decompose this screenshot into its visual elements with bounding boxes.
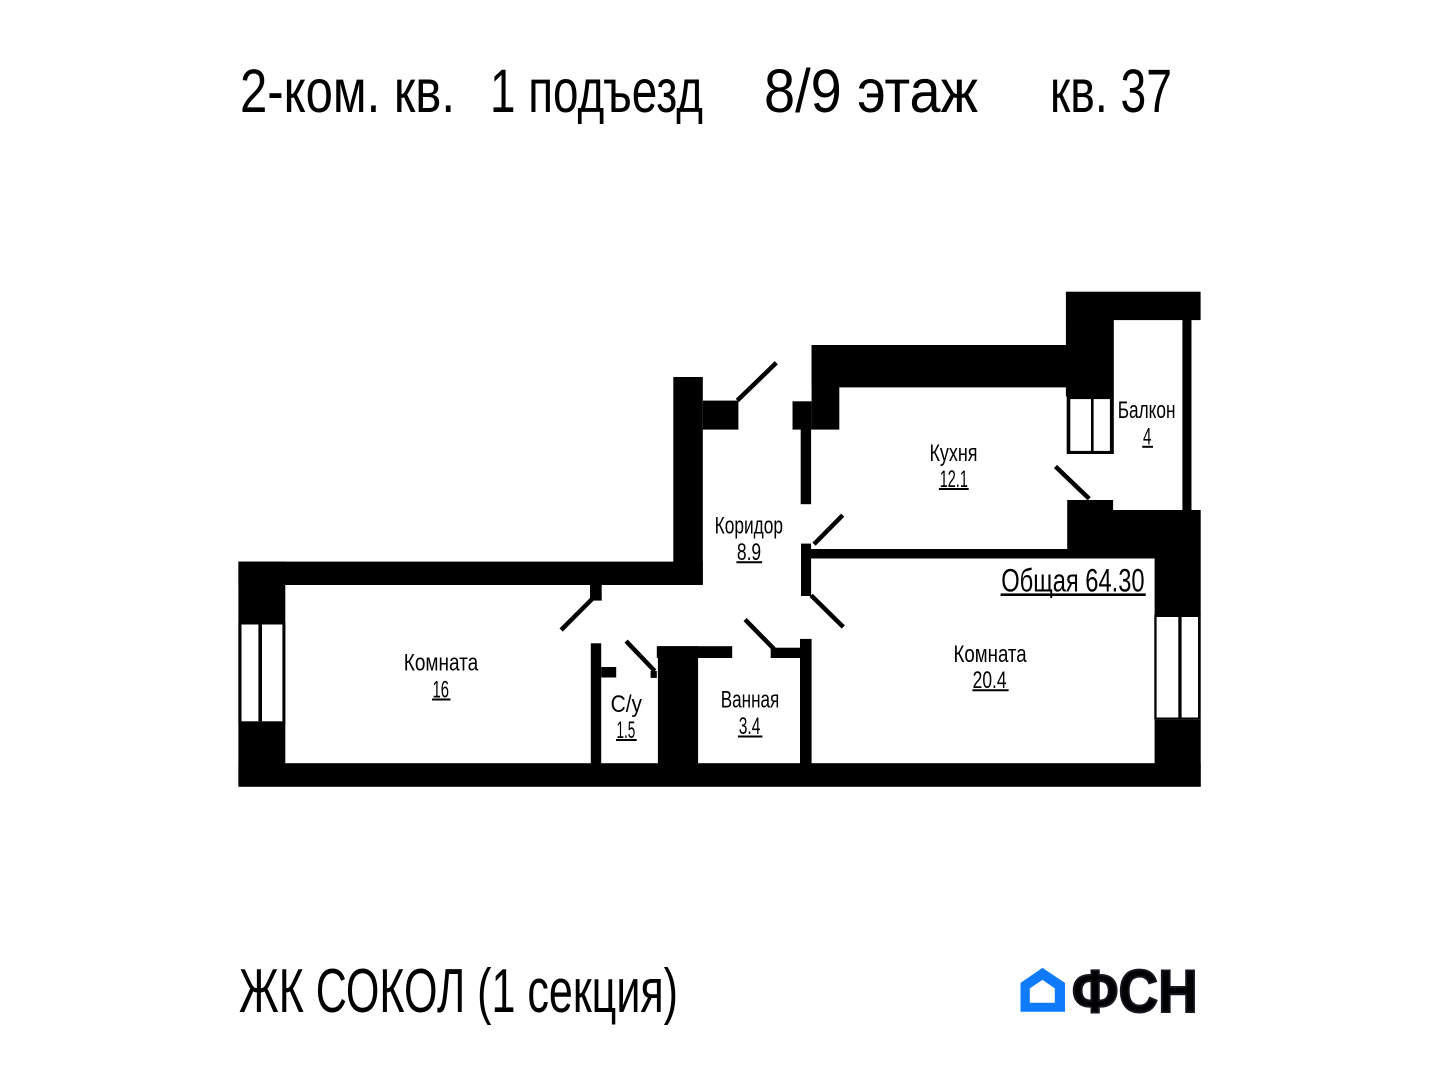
svg-text:Комната: Комната (404, 650, 479, 677)
svg-text:Коридор: Коридор (715, 513, 783, 540)
svg-text:Общая 64.30: Общая 64.30 (1001, 563, 1144, 599)
svg-text:ФСН: ФСН (1072, 958, 1198, 1025)
svg-text:Ванная: Ванная (721, 687, 780, 714)
svg-text:Комната: Комната (954, 641, 1028, 668)
svg-text:С/у: С/у (611, 691, 642, 718)
svg-text:1 подъезд: 1 подъезд (490, 57, 703, 125)
svg-text:кв. 37: кв. 37 (1050, 57, 1172, 125)
svg-text:Балкон: Балкон (1118, 397, 1176, 424)
svg-text:2-ком. кв.: 2-ком. кв. (240, 57, 455, 125)
svg-text:Кухня: Кухня (929, 440, 977, 467)
svg-text:ЖК СОКОЛ (1 секция): ЖК СОКОЛ (1 секция) (239, 957, 678, 1026)
svg-text:8/9 этаж: 8/9 этаж (764, 57, 978, 125)
